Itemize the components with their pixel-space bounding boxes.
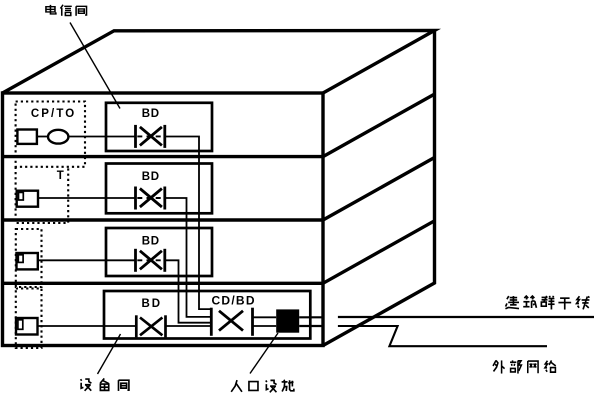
svg-text:BD: BD <box>142 108 159 120</box>
svg-text:BD: BD <box>142 298 161 310</box>
svg-text:CD/BD: CD/BD <box>212 293 255 307</box>
svg-text:BD: BD <box>142 236 159 248</box>
svg-text:CP/TO: CP/TO <box>31 108 74 120</box>
svg-text:T: T <box>57 170 64 182</box>
svg-text:BD: BD <box>142 171 159 183</box>
